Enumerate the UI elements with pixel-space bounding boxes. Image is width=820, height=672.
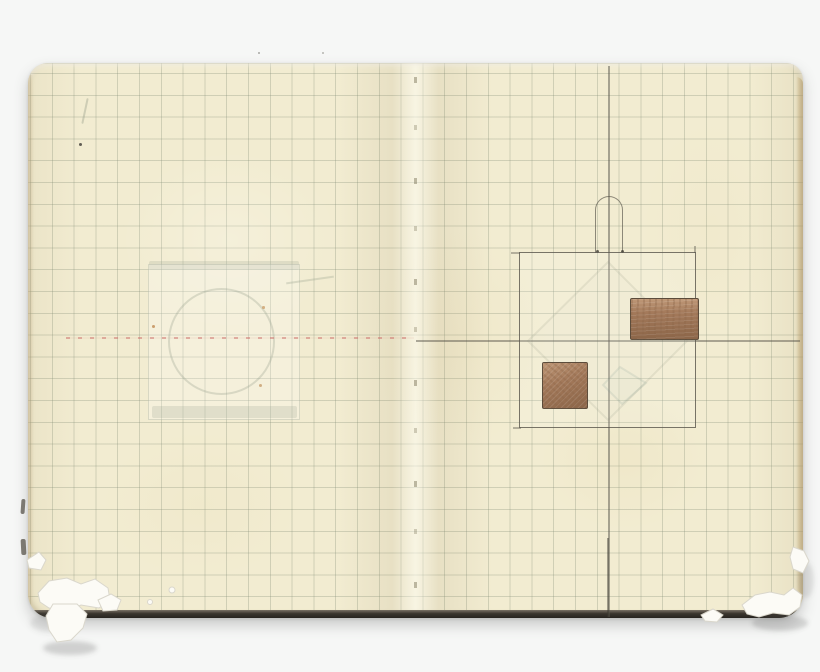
torn-paper-speck: [148, 600, 153, 605]
rust-speck: [152, 325, 155, 328]
copper-rectangle-large: [630, 298, 699, 340]
pencil-vertical-guide-dark-segment: [607, 538, 609, 617]
torn-paper-chip: [701, 609, 723, 622]
red-dashed-bleed-line: [66, 337, 414, 339]
tear-shadow: [752, 615, 808, 631]
dust-speck: [258, 52, 260, 54]
ghost-bottom-band: [152, 406, 297, 418]
ink-speck: [79, 143, 82, 146]
page-block-right-edge: [796, 77, 803, 609]
torn-paper-flap: [46, 604, 87, 642]
torn-corner-bottom-right: [685, 535, 815, 645]
dust-speck: [322, 52, 324, 54]
sketch-arch-handle: [595, 196, 623, 253]
rust-speck: [259, 384, 262, 387]
tear-shadow: [43, 641, 97, 655]
torn-paper-chip: [27, 552, 46, 570]
ghost-circle: [168, 288, 275, 395]
rust-speck: [262, 306, 265, 309]
notebook-scan: [0, 0, 820, 672]
cover-edge-mark: [20, 499, 25, 514]
torn-paper-speck: [169, 587, 175, 593]
copper-rectangle-small: [542, 362, 588, 409]
torn-paper-chip: [742, 588, 802, 617]
torn-corner-bottom-left: [15, 548, 250, 663]
page-block-left-edge: [28, 75, 33, 608]
